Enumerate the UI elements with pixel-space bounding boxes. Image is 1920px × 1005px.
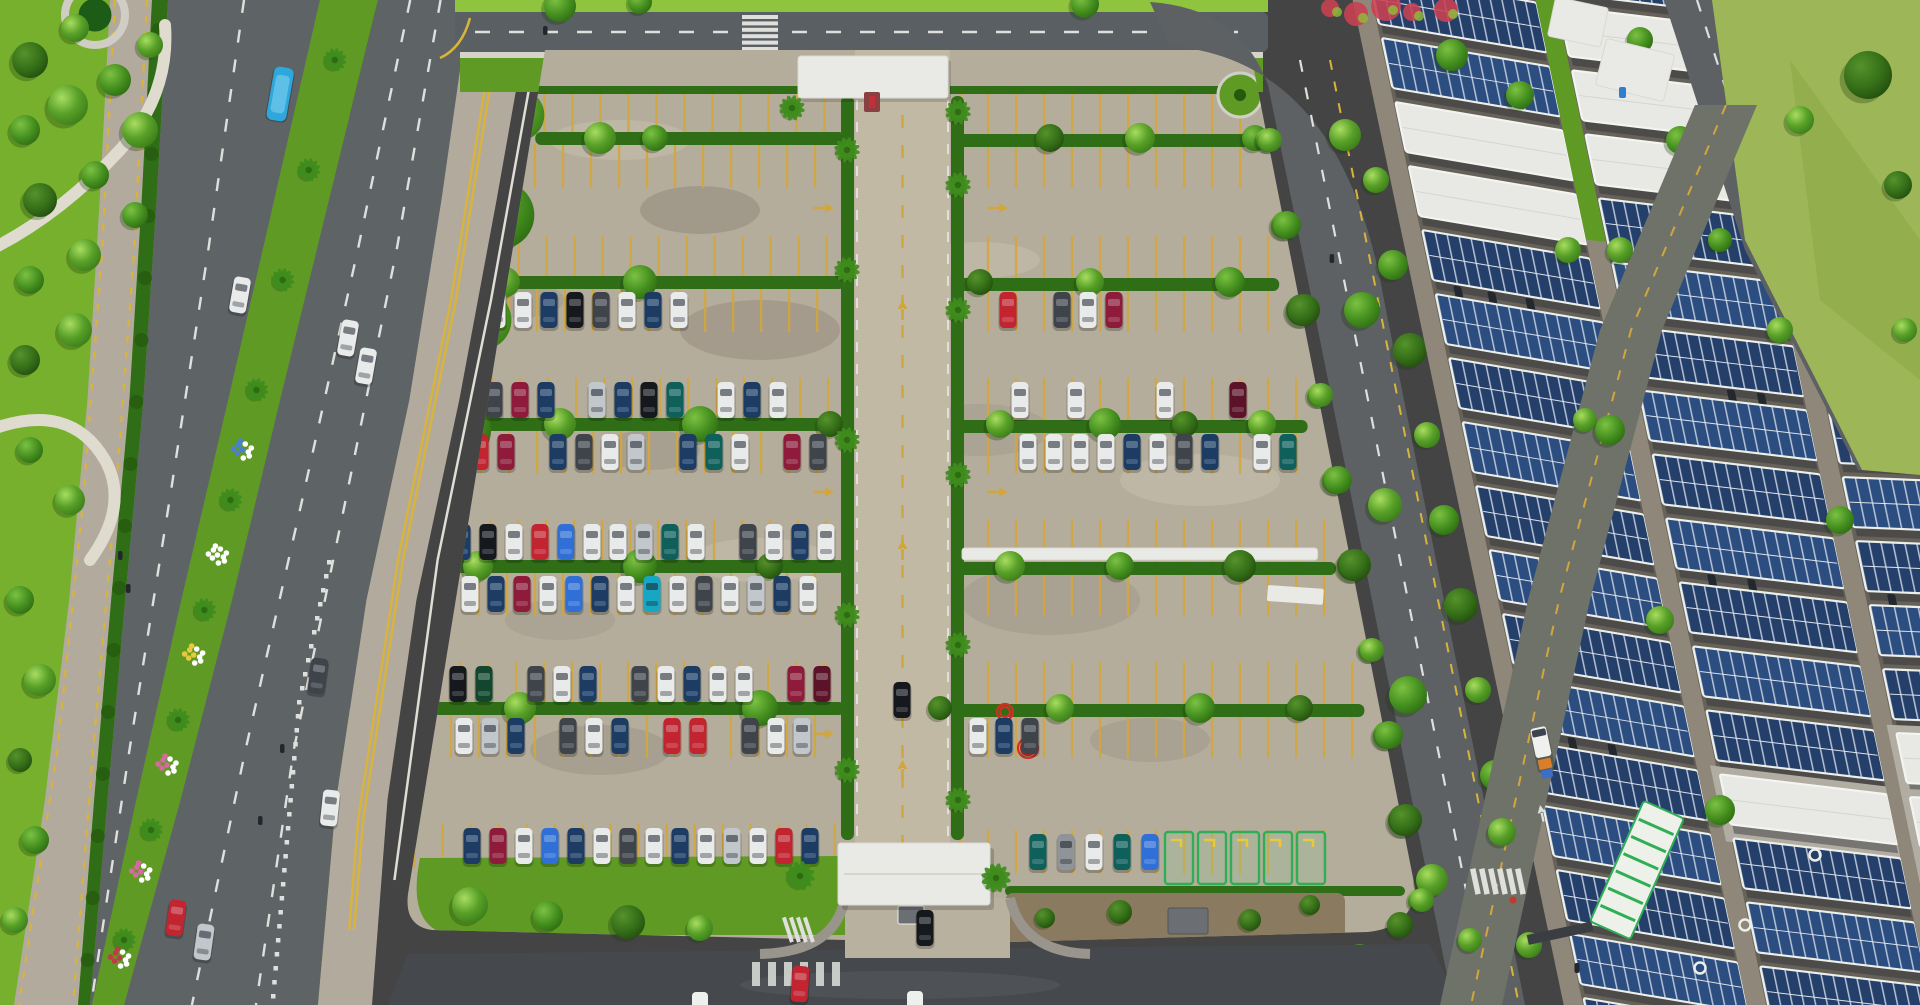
car bbox=[995, 718, 1014, 757]
gate-barrier-arm bbox=[869, 96, 875, 108]
car bbox=[588, 382, 607, 421]
solar-canopy bbox=[1856, 541, 1920, 598]
car bbox=[817, 524, 836, 563]
car bbox=[809, 434, 828, 473]
bougainvillea-leaf bbox=[1358, 13, 1368, 23]
dotted-line bbox=[292, 756, 297, 761]
car bbox=[969, 718, 988, 757]
scooter bbox=[1330, 254, 1335, 263]
dotted-line bbox=[281, 882, 286, 887]
car bbox=[661, 524, 680, 563]
car bbox=[514, 292, 533, 331]
dotted-line bbox=[282, 868, 287, 873]
cart bbox=[1619, 87, 1626, 98]
car bbox=[527, 666, 546, 705]
bush bbox=[118, 519, 132, 533]
ev-charging-stalls bbox=[1165, 832, 1325, 884]
car bbox=[666, 382, 685, 421]
bush bbox=[112, 581, 126, 595]
car bbox=[592, 292, 611, 331]
dotted-line bbox=[293, 742, 298, 747]
dotted-line bbox=[272, 980, 277, 985]
bush bbox=[101, 705, 115, 719]
dotted-line bbox=[285, 840, 290, 845]
dotted-line bbox=[286, 826, 291, 831]
car bbox=[1105, 292, 1124, 331]
car bbox=[671, 828, 690, 867]
car bbox=[540, 292, 559, 331]
solar-canopy bbox=[1843, 477, 1920, 534]
car bbox=[793, 718, 812, 757]
car bbox=[813, 666, 832, 705]
scooter bbox=[543, 26, 548, 35]
car bbox=[593, 828, 612, 867]
car bbox=[717, 382, 736, 421]
dotted-line bbox=[303, 672, 308, 677]
car bbox=[644, 292, 663, 331]
car bbox=[635, 524, 654, 563]
dotted-line bbox=[324, 574, 329, 579]
hedge-strip bbox=[958, 134, 1250, 147]
car bbox=[566, 292, 585, 331]
car bbox=[1279, 434, 1298, 473]
bougainvillea-leaf bbox=[1448, 9, 1458, 19]
scooter bbox=[258, 816, 263, 825]
car bbox=[735, 666, 754, 705]
car bbox=[505, 524, 524, 563]
top-grass-sliver bbox=[455, 0, 1268, 12]
car bbox=[689, 718, 708, 757]
car bbox=[1079, 292, 1098, 331]
car bbox=[801, 828, 820, 867]
car bbox=[709, 666, 728, 705]
car bbox=[618, 292, 637, 331]
gate-canopy bbox=[798, 56, 948, 98]
car bbox=[657, 666, 676, 705]
car bbox=[747, 576, 766, 615]
car bbox=[549, 434, 568, 473]
crosswalk bbox=[832, 962, 840, 986]
car bbox=[687, 524, 706, 563]
crosswalk bbox=[752, 962, 760, 986]
car bbox=[1071, 434, 1090, 473]
car bbox=[463, 828, 482, 867]
dotted-line bbox=[306, 658, 311, 663]
bush bbox=[124, 457, 138, 471]
car bbox=[485, 382, 504, 421]
dotted-line bbox=[295, 728, 300, 733]
car bbox=[609, 524, 628, 563]
car bbox=[619, 828, 638, 867]
car bbox=[731, 434, 750, 473]
car bbox=[481, 718, 500, 757]
dotted-line bbox=[278, 910, 283, 915]
car bbox=[791, 524, 810, 563]
crosswalk bbox=[768, 962, 776, 986]
car bbox=[627, 434, 646, 473]
car bbox=[663, 718, 682, 757]
car bbox=[449, 666, 468, 705]
car bbox=[479, 524, 498, 563]
car bbox=[631, 666, 650, 705]
tree bbox=[1375, 250, 1408, 283]
car bbox=[767, 718, 786, 757]
car bbox=[765, 524, 784, 563]
tree bbox=[1390, 333, 1427, 370]
dotted-line bbox=[280, 896, 285, 901]
car bbox=[1021, 718, 1040, 757]
car bbox=[1085, 834, 1104, 873]
car bbox=[1141, 834, 1160, 873]
car bbox=[773, 576, 792, 615]
car bbox=[645, 828, 664, 867]
car bbox=[775, 828, 794, 867]
scooter bbox=[280, 744, 285, 753]
moving-car bbox=[893, 682, 912, 721]
car bbox=[741, 718, 760, 757]
car bbox=[539, 576, 558, 615]
aerial-parking-photo bbox=[0, 0, 1920, 1005]
dotted-line bbox=[275, 952, 280, 957]
tree bbox=[1463, 677, 1491, 705]
car bbox=[1156, 382, 1175, 421]
bougainvillea-leaf bbox=[1414, 11, 1424, 21]
car bbox=[487, 576, 506, 615]
car bbox=[461, 576, 480, 615]
bougainvillea-leaf bbox=[1332, 7, 1342, 17]
car bbox=[669, 576, 688, 615]
car bbox=[559, 718, 578, 757]
car bbox=[614, 382, 633, 421]
scooter bbox=[126, 584, 131, 593]
car bbox=[1011, 382, 1030, 421]
car bbox=[679, 434, 698, 473]
car bbox=[705, 434, 724, 473]
car bbox=[1229, 382, 1248, 421]
car bbox=[453, 524, 472, 563]
car bbox=[1057, 834, 1076, 873]
aerial-photo-stage bbox=[0, 0, 1920, 1005]
car bbox=[579, 666, 598, 705]
car bbox=[617, 576, 636, 615]
car bbox=[683, 666, 702, 705]
dotted-line bbox=[297, 700, 302, 705]
car bbox=[1067, 382, 1086, 421]
car bbox=[769, 382, 788, 421]
car bbox=[643, 576, 662, 615]
car bbox=[583, 524, 602, 563]
car bbox=[511, 382, 530, 421]
dotted-line bbox=[318, 602, 323, 607]
car bbox=[475, 666, 494, 705]
car bbox=[1175, 434, 1194, 473]
crosswalk bbox=[742, 21, 778, 25]
bush bbox=[107, 643, 121, 657]
car bbox=[1097, 434, 1116, 473]
car bbox=[565, 576, 584, 615]
crosswalk bbox=[742, 15, 778, 19]
dotted-line bbox=[315, 616, 320, 621]
car bbox=[1045, 434, 1064, 473]
car bbox=[723, 828, 742, 867]
wet-patch bbox=[640, 186, 760, 234]
car bbox=[507, 718, 526, 757]
island-shrub bbox=[1234, 89, 1246, 101]
hedge-strip bbox=[509, 276, 845, 289]
dotted-line bbox=[290, 784, 295, 789]
tree bbox=[1441, 588, 1478, 625]
exiting-car bbox=[916, 910, 935, 949]
car bbox=[557, 524, 576, 563]
dotted-line bbox=[321, 588, 326, 593]
crosswalk bbox=[816, 962, 824, 986]
utility-shed bbox=[1168, 908, 1208, 934]
dotted-line bbox=[271, 994, 276, 999]
car bbox=[1113, 834, 1132, 873]
car bbox=[907, 991, 923, 1005]
car bbox=[515, 828, 534, 867]
bush bbox=[86, 891, 100, 905]
car bbox=[567, 828, 586, 867]
car bbox=[697, 828, 716, 867]
car bbox=[585, 718, 604, 757]
scooter bbox=[118, 551, 123, 560]
car bbox=[721, 576, 740, 615]
car bbox=[670, 292, 689, 331]
moving-car bbox=[789, 965, 811, 1005]
dotted-line bbox=[291, 770, 296, 775]
bush bbox=[145, 147, 159, 161]
tree bbox=[1361, 167, 1389, 195]
car bbox=[611, 718, 630, 757]
hedge-strip bbox=[482, 418, 845, 431]
car bbox=[640, 382, 659, 421]
dotted-line bbox=[288, 798, 293, 803]
crosswalk bbox=[742, 28, 778, 32]
car bbox=[471, 434, 490, 473]
car bbox=[1019, 434, 1038, 473]
bush bbox=[91, 829, 105, 843]
car bbox=[497, 434, 516, 473]
dotted-line bbox=[300, 686, 305, 691]
car bbox=[799, 576, 818, 615]
crosswalk bbox=[742, 41, 778, 45]
car bbox=[1053, 292, 1072, 331]
bush bbox=[138, 271, 152, 285]
dotted-line bbox=[273, 966, 278, 971]
car bbox=[537, 382, 556, 421]
pedestrian bbox=[1510, 897, 1517, 904]
crosswalk bbox=[742, 34, 778, 38]
car bbox=[1029, 834, 1048, 873]
dotted-line bbox=[283, 854, 288, 859]
dotted-line bbox=[312, 630, 317, 635]
car bbox=[1201, 434, 1220, 473]
dotted-line bbox=[309, 644, 314, 649]
wet-patch bbox=[680, 300, 840, 360]
dotted-line bbox=[287, 812, 292, 817]
car bbox=[553, 666, 572, 705]
car bbox=[783, 434, 802, 473]
car bbox=[455, 718, 474, 757]
bougainvillea-leaf bbox=[1388, 5, 1398, 15]
dotted-line bbox=[327, 560, 332, 565]
car bbox=[739, 524, 758, 563]
car bbox=[591, 576, 610, 615]
dotted-line bbox=[277, 924, 282, 929]
car bbox=[1149, 434, 1168, 473]
bush bbox=[96, 767, 110, 781]
car bbox=[743, 382, 762, 421]
tree bbox=[1326, 119, 1361, 154]
car bbox=[695, 576, 714, 615]
motorbike bbox=[1575, 963, 1580, 973]
bush bbox=[129, 395, 143, 409]
car bbox=[489, 828, 508, 867]
car bbox=[541, 828, 560, 867]
car bbox=[692, 992, 708, 1005]
dotted-line bbox=[276, 938, 281, 943]
tree bbox=[1426, 505, 1459, 538]
car bbox=[787, 666, 806, 705]
car bbox=[1123, 434, 1142, 473]
dotted-line bbox=[296, 714, 301, 719]
tree bbox=[1412, 422, 1440, 450]
car bbox=[531, 524, 550, 563]
car bbox=[513, 576, 532, 615]
car bbox=[601, 434, 620, 473]
aisle-hedge bbox=[841, 96, 854, 840]
bush bbox=[81, 953, 95, 967]
car bbox=[749, 828, 768, 867]
car bbox=[999, 292, 1018, 331]
car bbox=[575, 434, 594, 473]
car bbox=[1253, 434, 1272, 473]
bush bbox=[135, 333, 149, 347]
